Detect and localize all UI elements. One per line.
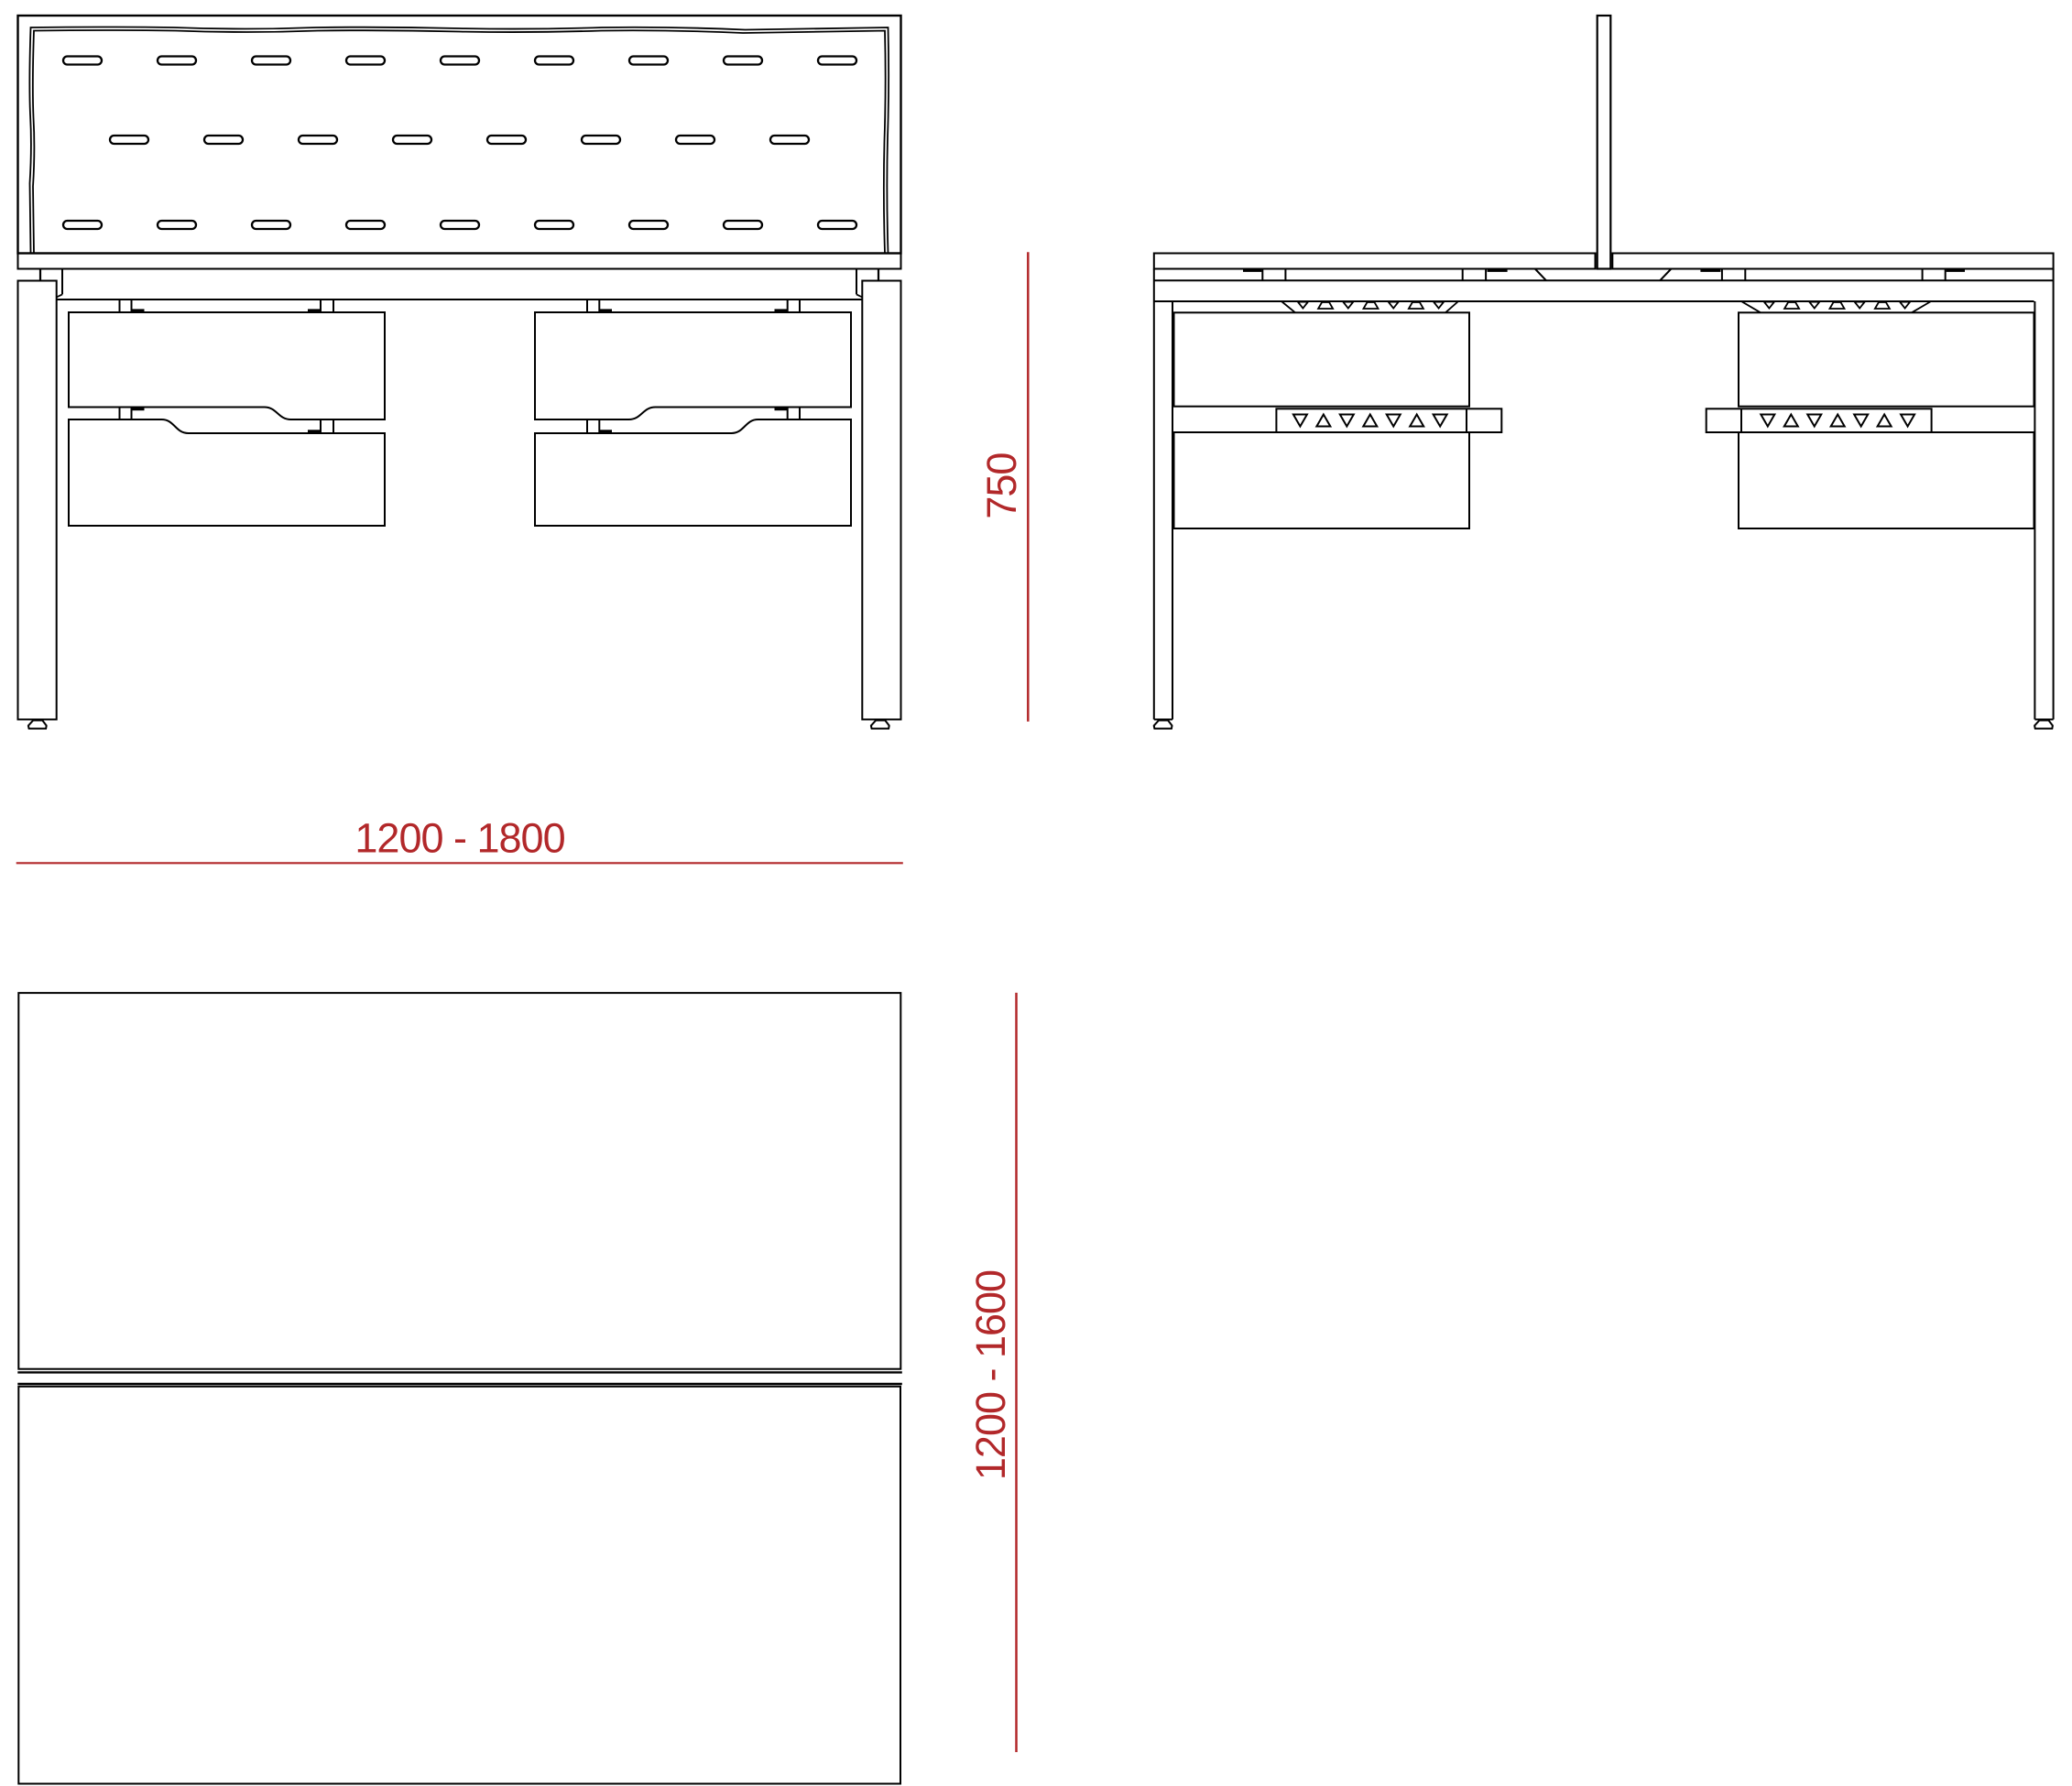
svg-text:1200 - 1800: 1200 - 1800 [354, 815, 564, 862]
svg-text:750: 750 [978, 453, 1025, 519]
svg-text:1200 - 1600: 1200 - 1600 [967, 1270, 1014, 1480]
